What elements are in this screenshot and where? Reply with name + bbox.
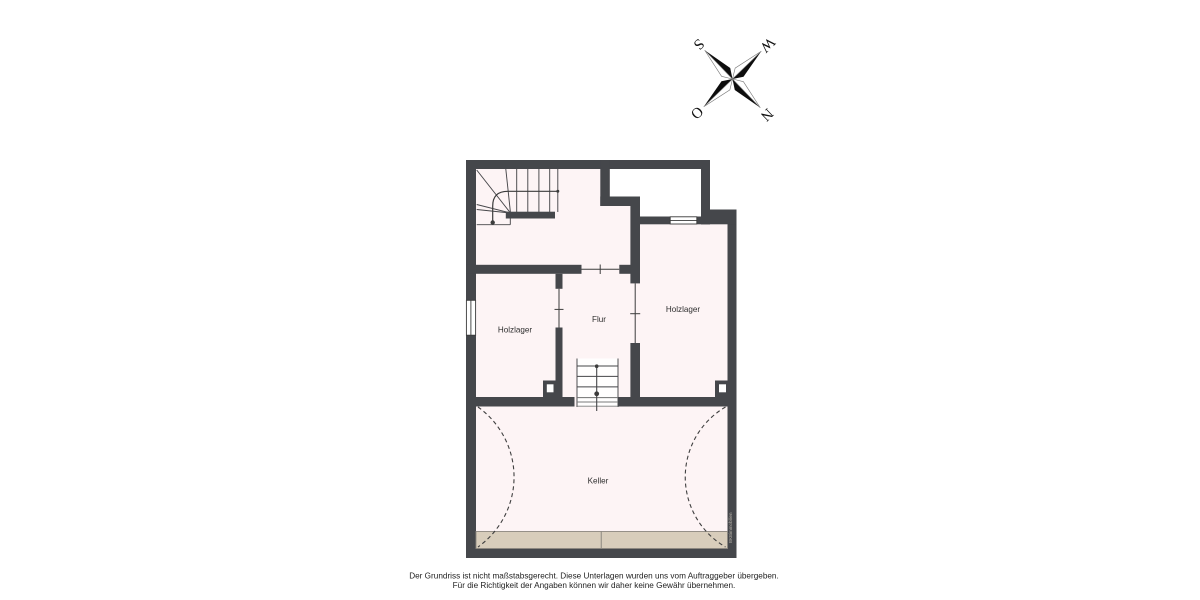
svg-text:Der Grundriss ist nicht maßsta: Der Grundriss ist nicht maßstabsgerecht.… xyxy=(409,572,779,581)
svg-text:W: W xyxy=(756,34,778,56)
svg-text:O: O xyxy=(687,103,706,122)
svg-text:Holzlager: Holzlager xyxy=(666,305,700,314)
svg-text:Holzlager: Holzlager xyxy=(498,325,532,334)
svg-text:Keller: Keller xyxy=(588,476,609,485)
svg-text:Flur: Flur xyxy=(592,315,606,324)
svg-text:S: S xyxy=(690,35,707,52)
svg-text:Für die Richtigkeit der Angabe: Für die Richtigkeit der Angaben können w… xyxy=(453,581,736,590)
svg-text:BKBimmobilien: BKBimmobilien xyxy=(728,512,733,543)
